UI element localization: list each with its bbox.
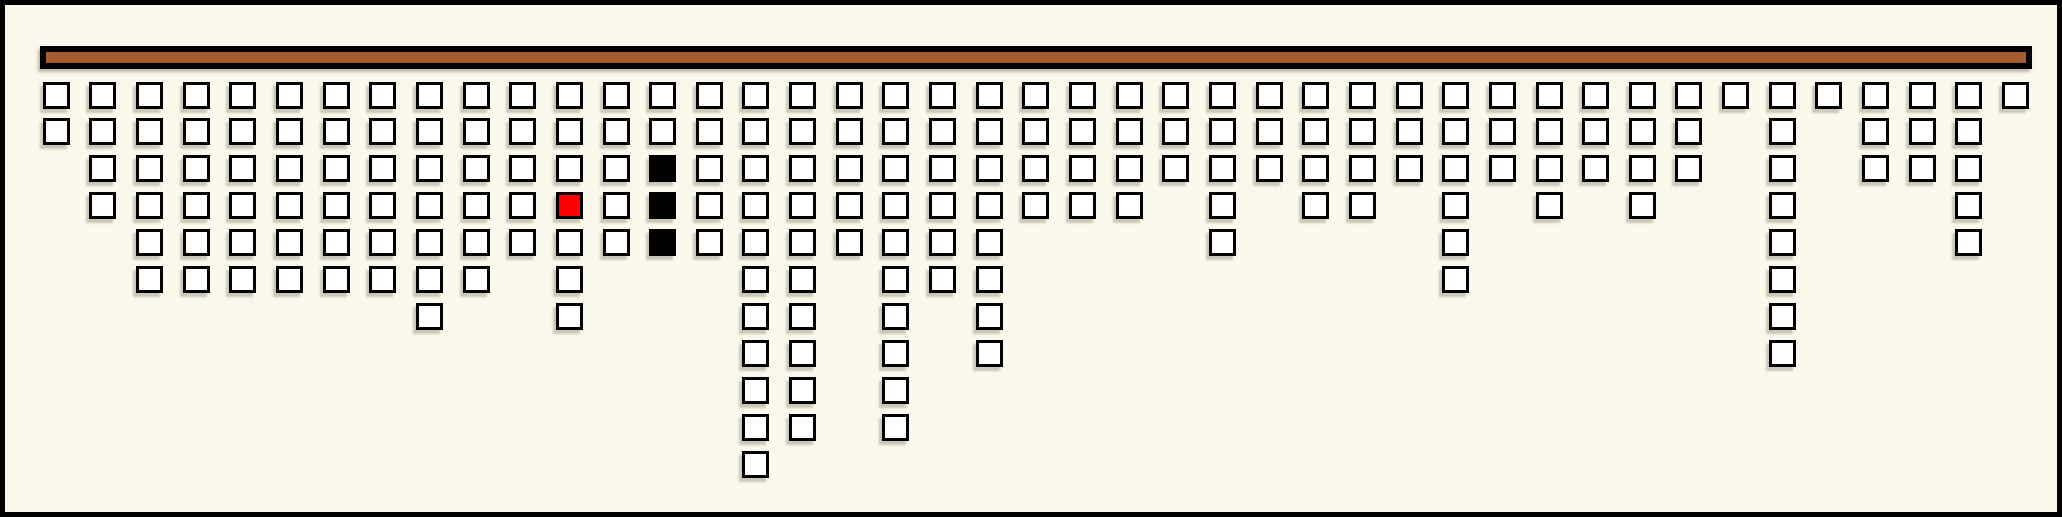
grid-cell[interactable] [229,82,256,109]
grid-cell[interactable] [1769,303,1796,330]
grid-cell[interactable] [929,266,956,293]
grid-cell[interactable] [89,155,116,182]
grid-cell[interactable] [789,155,816,182]
board-frame [0,0,2062,517]
grid-cell[interactable] [276,82,303,109]
grid-cell-black[interactable] [649,229,676,256]
grid-cell[interactable] [696,118,723,145]
grid-cell[interactable] [1442,266,1469,293]
grid-cell[interactable] [1116,118,1143,145]
grid-cell[interactable] [416,155,443,182]
grid-cell[interactable] [1815,82,1842,109]
grid-cell[interactable] [1349,192,1376,219]
grid-cell[interactable] [1582,118,1609,145]
grid-cell[interactable] [789,303,816,330]
grid-cell[interactable] [1302,118,1329,145]
grid-cell[interactable] [1302,155,1329,182]
grid-cell[interactable] [1349,118,1376,145]
grid-cell[interactable] [1769,229,1796,256]
grid-cell[interactable] [1536,155,1563,182]
grid-cell[interactable] [136,118,163,145]
grid-cell[interactable] [229,118,256,145]
grid-cell[interactable] [556,82,583,109]
grid-cell[interactable] [183,155,210,182]
grid-cell[interactable] [742,118,769,145]
grid-cell[interactable] [742,155,769,182]
grid-cell[interactable] [696,229,723,256]
grid-cell[interactable] [416,82,443,109]
grid-cell[interactable] [2002,82,2029,109]
grid-cell[interactable] [976,118,1003,145]
grid-cell[interactable] [1069,118,1096,145]
grid-cell[interactable] [509,229,536,256]
grid-cell[interactable] [976,340,1003,367]
grid-cell[interactable] [1442,155,1469,182]
grid-cell[interactable] [1536,118,1563,145]
grid-cell[interactable] [136,155,163,182]
grid-cell[interactable] [1955,118,1982,145]
grid-cell[interactable] [929,155,956,182]
grid-cell[interactable] [1209,229,1236,256]
grid-cell[interactable] [323,118,350,145]
grid-cell[interactable] [882,82,909,109]
grid-cell[interactable] [416,192,443,219]
grid-cell[interactable] [1629,118,1656,145]
grid-cell[interactable] [1442,192,1469,219]
grid-cell[interactable] [1862,155,1889,182]
grid-cell[interactable] [789,82,816,109]
grid-cell[interactable] [836,155,863,182]
grid-cell[interactable] [742,266,769,293]
grid-cell[interactable] [463,82,490,109]
grid-cell[interactable] [976,155,1003,182]
grid-cell[interactable] [463,118,490,145]
grid-cell[interactable] [1536,82,1563,109]
grid-cell[interactable] [649,118,676,145]
grid-cell-red[interactable] [556,192,583,219]
grid-cell[interactable] [183,82,210,109]
grid-cell[interactable] [1209,118,1236,145]
grid-cell[interactable] [229,229,256,256]
grid-cell[interactable] [369,266,396,293]
grid-cell[interactable] [556,118,583,145]
grid-cell[interactable] [1909,118,1936,145]
grid-cell[interactable] [369,82,396,109]
grid-cell[interactable] [1675,82,1702,109]
grid-cell[interactable] [369,229,396,256]
grid-cell[interactable] [742,377,769,404]
grid-cell[interactable] [43,82,70,109]
grid-cell[interactable] [1302,192,1329,219]
grid-cell[interactable] [1629,192,1656,219]
hanger-bar [40,46,2032,69]
grid-cell[interactable] [603,82,630,109]
grid-cell[interactable] [1302,82,1329,109]
grid-cell[interactable] [463,155,490,182]
grid-cell[interactable] [276,118,303,145]
grid-cell[interactable] [882,303,909,330]
grid-cell[interactable] [183,192,210,219]
grid-cell[interactable] [183,266,210,293]
grid-cell[interactable] [136,266,163,293]
grid-cell[interactable] [229,155,256,182]
grid-cell[interactable] [1116,82,1143,109]
grid-cell[interactable] [649,82,676,109]
grid-cell[interactable] [789,414,816,441]
grid-cell-black[interactable] [649,155,676,182]
grid-cell[interactable] [89,118,116,145]
grid-cell[interactable] [89,82,116,109]
grid-cell[interactable] [1396,118,1423,145]
grid-cell[interactable] [1256,118,1283,145]
grid-cell[interactable] [509,118,536,145]
grid-cell[interactable] [509,155,536,182]
grid-cell[interactable] [1396,82,1423,109]
grid-cell[interactable] [509,82,536,109]
grid-cell[interactable] [742,192,769,219]
grid-cell[interactable] [1955,229,1982,256]
grid-cell[interactable] [1162,155,1189,182]
grid-cell[interactable] [1582,82,1609,109]
grid-cell[interactable] [882,266,909,293]
grid-cell[interactable] [183,229,210,256]
grid-cell[interactable] [1209,192,1236,219]
grid-cell[interactable] [1349,155,1376,182]
grid-cell[interactable] [369,155,396,182]
grid-cell[interactable] [696,82,723,109]
grid-cell[interactable] [416,303,443,330]
grid-cell[interactable] [1536,192,1563,219]
grid-cell[interactable] [882,192,909,219]
grid-cell[interactable] [882,155,909,182]
grid-cell[interactable] [229,192,256,219]
grid-cell[interactable] [463,266,490,293]
grid-cell[interactable] [603,155,630,182]
grid-cell[interactable] [1769,118,1796,145]
grid-cell[interactable] [742,414,769,441]
grid-cell[interactable] [836,192,863,219]
grid-cell[interactable] [43,118,70,145]
grid-cell[interactable] [789,229,816,256]
grid-cell[interactable] [882,340,909,367]
grid-cell[interactable] [603,229,630,256]
grid-cell[interactable] [1022,82,1049,109]
grid-cell[interactable] [789,340,816,367]
grid-cell[interactable] [323,192,350,219]
grid-cell[interactable] [416,118,443,145]
grid-cell[interactable] [1675,118,1702,145]
grid-cell[interactable] [1582,155,1609,182]
grid-cell[interactable] [1396,155,1423,182]
grid-cell[interactable] [89,192,116,219]
grid-cell[interactable] [1069,192,1096,219]
grid-cell[interactable] [323,155,350,182]
grid-cell[interactable] [1442,82,1469,109]
grid-cell[interactable] [276,266,303,293]
grid-cell[interactable] [976,229,1003,256]
grid-cell[interactable] [976,266,1003,293]
grid-cell[interactable] [463,229,490,256]
grid-cell[interactable] [742,82,769,109]
grid-cell[interactable] [742,451,769,478]
grid-cell[interactable] [976,303,1003,330]
grid-cell[interactable] [556,229,583,256]
grid-cell[interactable] [1489,155,1516,182]
grid-cell[interactable] [882,377,909,404]
grid-cell[interactable] [1955,192,1982,219]
grid-cell[interactable] [1862,118,1889,145]
grid-cell[interactable] [1022,118,1049,145]
grid-cell[interactable] [742,340,769,367]
grid-cell[interactable] [1116,155,1143,182]
grid-cell[interactable] [136,192,163,219]
grid-cell[interactable] [136,229,163,256]
grid-cell[interactable] [929,229,956,256]
grid-cell[interactable] [836,118,863,145]
grid-cell[interactable] [789,266,816,293]
grid-cell[interactable] [696,155,723,182]
grid-cell[interactable] [1256,82,1283,109]
grid-cell[interactable] [1442,229,1469,256]
grid-cell[interactable] [603,118,630,145]
grid-cell[interactable] [742,229,769,256]
grid-cell[interactable] [416,229,443,256]
grid-cell[interactable] [1629,82,1656,109]
grid-cell[interactable] [929,118,956,145]
grid-cell[interactable] [416,266,443,293]
grid-cell[interactable] [463,192,490,219]
grid-cell[interactable] [1769,266,1796,293]
grid-cell[interactable] [1769,82,1796,109]
grid-cell[interactable] [836,229,863,256]
grid-cell[interactable] [183,118,210,145]
grid-cell[interactable] [323,229,350,256]
grid-cell[interactable] [1442,118,1469,145]
grid-cell[interactable] [323,266,350,293]
grid-cell[interactable] [1722,82,1749,109]
grid-cell[interactable] [1675,155,1702,182]
grid-cell[interactable] [1116,192,1143,219]
grid-cell[interactable] [696,192,723,219]
grid-cell[interactable] [1489,82,1516,109]
grid-cell[interactable] [1256,155,1283,182]
grid-cell[interactable] [1909,155,1936,182]
grid-cell[interactable] [556,266,583,293]
grid-cell[interactable] [369,192,396,219]
grid-cell[interactable] [1769,192,1796,219]
grid-cell[interactable] [1162,118,1189,145]
grid-cell[interactable] [276,192,303,219]
grid-cell[interactable] [556,155,583,182]
grid-cell[interactable] [1769,155,1796,182]
grid-cell[interactable] [1022,192,1049,219]
grid-cell[interactable] [1069,82,1096,109]
grid-cell[interactable] [603,192,630,219]
grid-cell[interactable] [1955,155,1982,182]
grid-cell[interactable] [1489,118,1516,145]
grid-cell-black[interactable] [649,192,676,219]
grid-cell[interactable] [929,82,956,109]
grid-cell[interactable] [1909,82,1936,109]
grid-cell[interactable] [1162,82,1189,109]
grid-cell[interactable] [1209,155,1236,182]
grid-cell[interactable] [1769,340,1796,367]
grid-cell[interactable] [136,82,163,109]
grid-cell[interactable] [882,118,909,145]
grid-cell[interactable] [276,229,303,256]
grid-cell[interactable] [789,377,816,404]
grid-cell[interactable] [976,82,1003,109]
grid-cell[interactable] [742,303,769,330]
grid-cell[interactable] [836,82,863,109]
grid-cell[interactable] [556,303,583,330]
grid-cell[interactable] [1349,82,1376,109]
grid-cell[interactable] [369,118,396,145]
grid-cell[interactable] [1022,155,1049,182]
grid-cell[interactable] [1862,82,1889,109]
grid-cell[interactable] [929,192,956,219]
grid-cell[interactable] [882,414,909,441]
grid-cell[interactable] [1955,82,1982,109]
grid-cell[interactable] [276,155,303,182]
grid-cell[interactable] [509,192,536,219]
grid-cell[interactable] [229,266,256,293]
grid-cell[interactable] [976,192,1003,219]
grid-cell[interactable] [882,229,909,256]
grid-cell[interactable] [323,82,350,109]
grid-cell[interactable] [1069,155,1096,182]
grid-cell[interactable] [1629,155,1656,182]
grid-cell[interactable] [1209,82,1236,109]
grid-cell[interactable] [789,118,816,145]
grid-cell[interactable] [789,192,816,219]
